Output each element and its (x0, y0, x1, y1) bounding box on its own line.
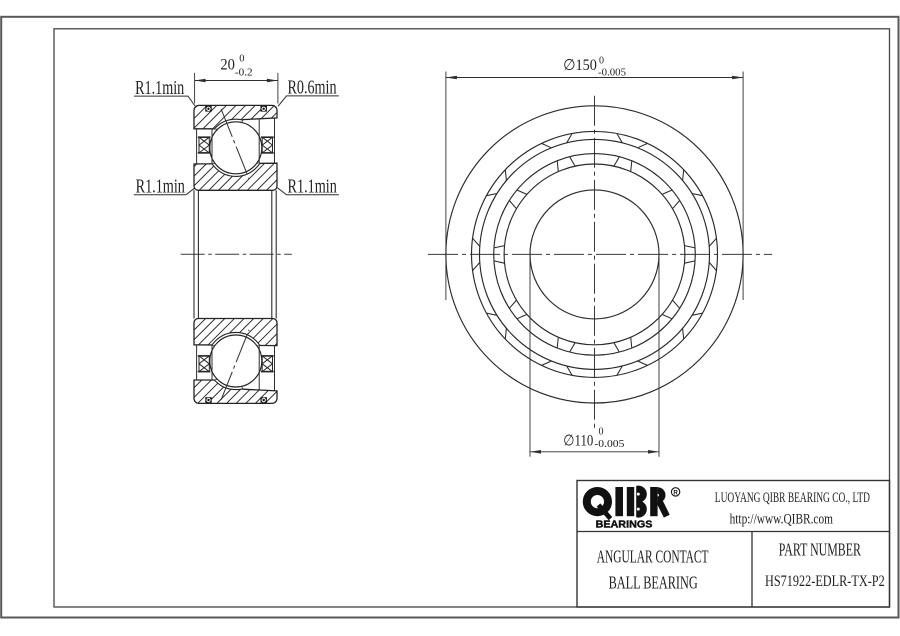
svg-text:0: 0 (239, 54, 244, 65)
svg-text:HS71922-EDLR-TX-P2: HS71922-EDLR-TX-P2 (765, 573, 885, 590)
svg-text:LUOYANG QIBR BEARING CO., LTD: LUOYANG QIBR BEARING CO., LTD (715, 490, 870, 506)
svg-text:∅110: ∅110 (563, 433, 593, 450)
svg-text:0: 0 (599, 427, 604, 438)
svg-text:R: R (673, 490, 678, 497)
svg-text:-0.005: -0.005 (594, 439, 624, 450)
svg-text:-0.2: -0.2 (235, 67, 253, 78)
svg-text:∅150: ∅150 (563, 57, 597, 74)
svg-text:BALL BEARING: BALL BEARING (609, 572, 698, 592)
svg-text:20: 20 (220, 56, 235, 73)
svg-text:-0.005: -0.005 (598, 68, 626, 79)
svg-text:ANGULAR CONTACT: ANGULAR CONTACT (597, 547, 709, 567)
svg-text:PART NUMBER: PART NUMBER (779, 540, 861, 560)
svg-text:BEARINGS: BEARINGS (596, 519, 653, 530)
svg-text:0: 0 (599, 56, 604, 67)
svg-text:http://www.QIBR.com: http://www.QIBR.com (730, 511, 834, 527)
